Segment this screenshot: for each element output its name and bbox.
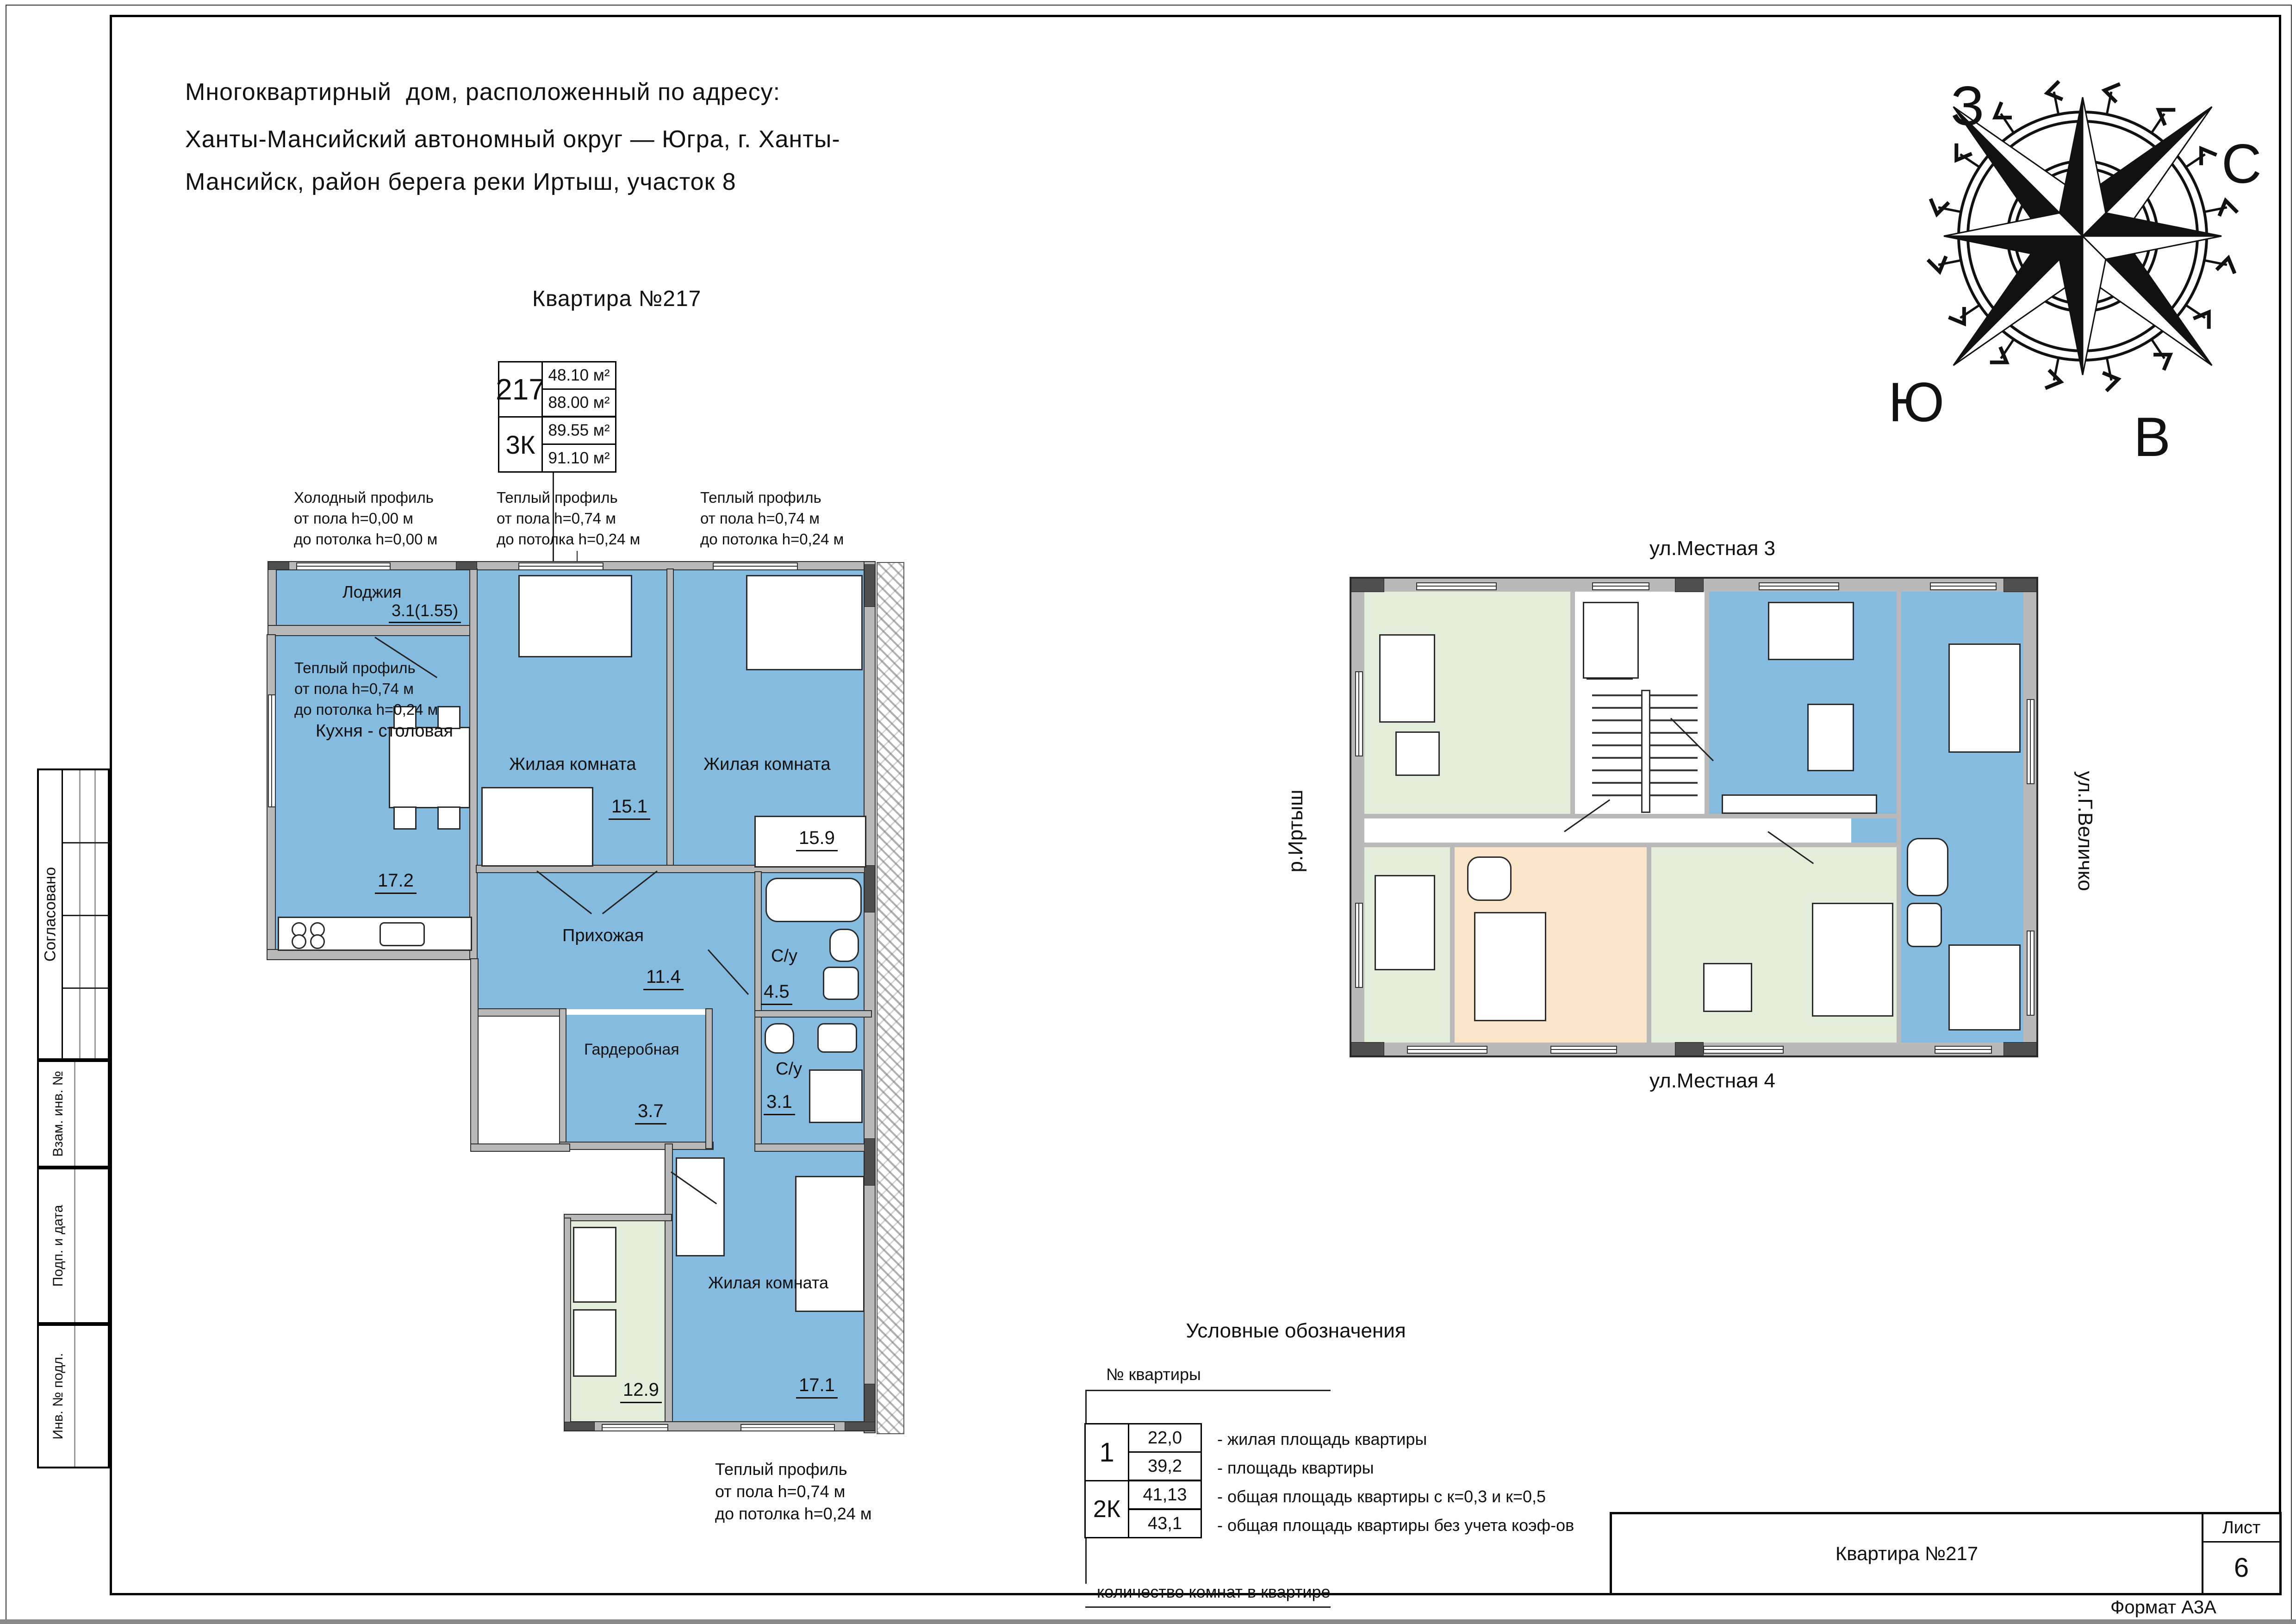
- title-block-sheet-cell: Лист 6: [2203, 1514, 2279, 1593]
- room-area-wardrobe: 3.7: [635, 1101, 666, 1124]
- shower: [809, 1069, 863, 1123]
- window: [1759, 582, 1839, 590]
- stove-burner: [292, 934, 306, 949]
- legend-cell-v1: 39,2: [1128, 1451, 1202, 1481]
- stamp-inv-box: Инв. № подл.: [37, 1324, 110, 1468]
- note-line: от пола h=0,00 м: [294, 508, 437, 529]
- window: [1930, 582, 1997, 590]
- wall-pier: [865, 565, 875, 606]
- toilet: [817, 1023, 857, 1053]
- card-area-flat: 88.00 м²: [548, 394, 610, 412]
- room-label-kitchen: Кухня - столовая: [316, 721, 453, 741]
- wall: [471, 959, 478, 1150]
- stamp-vzam-box: Взам. инв. №: [37, 1060, 110, 1168]
- elevator: [1583, 602, 1639, 679]
- room-corridor: [712, 1009, 755, 1144]
- sheet-bottom-shadow: [0, 1619, 2296, 1624]
- room-label-wardrobe: Гардеробная: [584, 1041, 679, 1059]
- note-line: от пола h=0,74 м: [294, 678, 438, 699]
- stamp-agreed-label: Согласовано: [41, 867, 59, 962]
- stove-burner: [310, 934, 325, 949]
- room-label-living3: Жилая комната: [708, 1273, 828, 1293]
- room-label-loggia: Лоджия: [342, 582, 402, 602]
- room-label-living2: Жилая комната: [703, 755, 830, 775]
- window: [1592, 582, 1649, 590]
- bathtub: [1467, 856, 1512, 901]
- window: [740, 1424, 835, 1431]
- title-block: Квартира №217 Лист 6: [1610, 1512, 2282, 1595]
- note-cold-profile: Холодный профиль от пола h=0,00 м до пот…: [294, 487, 437, 550]
- legend-cell-v3: 43,1: [1128, 1509, 1202, 1538]
- legend-sample-number: 1: [1099, 1437, 1114, 1468]
- wall: [755, 1011, 871, 1017]
- wall: [666, 1144, 672, 1429]
- wall: [477, 1009, 566, 1016]
- room-label-bath1: С/у: [771, 946, 797, 966]
- window: [2027, 931, 2035, 1016]
- card-cell-area-total: 91.10 м²: [541, 443, 616, 473]
- note-warm-profile-1: Теплый профиль от пола h=0,74 м до потол…: [497, 487, 640, 550]
- building-corridor: [1364, 818, 1897, 843]
- stamp-grid-vline2: [94, 770, 96, 1058]
- room-area-neighbor: 12.9: [620, 1380, 662, 1403]
- note-line: Теплый профиль: [715, 1458, 872, 1480]
- room-area-living3: 17.1: [796, 1375, 838, 1399]
- table: [1395, 731, 1440, 776]
- legend-cell-type: 2К: [1084, 1480, 1129, 1538]
- stamp-podp-box: Подп. и дата: [37, 1168, 110, 1324]
- window: [1355, 671, 1363, 756]
- title-block-name-cell: Квартира №217: [1612, 1514, 2203, 1593]
- chair: [393, 806, 417, 830]
- compass-rose: З С Ю В: [1870, 14, 2286, 458]
- legend-value: 41,13: [1143, 1485, 1187, 1505]
- note-line: от пола h=0,74 м: [497, 508, 640, 529]
- compass-east-label: В: [2134, 406, 2171, 458]
- wall-pier: [565, 1422, 594, 1430]
- street-label-bottom: ул.Местная 4: [1527, 1069, 1898, 1093]
- note-line: Холодный профиль: [294, 487, 437, 508]
- sheet-label: Лист: [2222, 1518, 2261, 1538]
- floor-plan-apartment: Лоджия 3.1(1.55) Теплый профиль от пола …: [241, 546, 916, 1454]
- bed: [518, 575, 632, 657]
- toilet: [1907, 903, 1942, 947]
- bed: [1375, 875, 1435, 970]
- note-line: Теплый профиль: [497, 487, 640, 508]
- address-line-2: Ханты-Мансийский автономный округ — Югра…: [185, 117, 840, 162]
- address-line-1: Многоквартирный дом, расположенный по ад…: [185, 69, 780, 115]
- chair: [437, 806, 460, 830]
- card-cell-number: 217: [498, 361, 543, 418]
- legend-leader-underline: [1085, 1606, 1331, 1608]
- bed: [1812, 903, 1893, 1017]
- note-line: от пола h=0,74 м: [700, 508, 844, 529]
- format-note: Формат А3А: [2110, 1597, 2216, 1618]
- wall: [706, 1009, 712, 1148]
- legend-leader-v2: [1085, 1538, 1087, 1584]
- wall: [865, 562, 875, 1432]
- kitchen-counter: [278, 917, 472, 951]
- note-line: до потолка h=0,24 м: [715, 1503, 872, 1525]
- note-warm-profile-2: Теплый профиль от пола h=0,74 м до потол…: [700, 487, 844, 550]
- card-cell-area-flat: 88.00 м²: [541, 388, 616, 417]
- wall-pier: [1675, 579, 1703, 592]
- legend-desc-1: - площадь квартиры: [1217, 1458, 1374, 1478]
- bed: [1948, 643, 2021, 753]
- window: [1416, 582, 1497, 590]
- kitchen-sink: [380, 922, 425, 946]
- compass-west-label: З: [1951, 75, 1984, 137]
- window: [713, 562, 798, 570]
- stamp-inv-divider: [74, 1326, 75, 1467]
- wall: [471, 1144, 569, 1151]
- window: [1935, 1046, 1992, 1054]
- wall-pier: [1351, 579, 1384, 592]
- toilet: [823, 967, 859, 1000]
- stamp-podp-divider: [74, 1169, 75, 1322]
- card-cell-area-living: 48.10 м²: [541, 361, 616, 390]
- wardrobe-cabinet: [481, 787, 593, 867]
- card-area-living: 48.10 м²: [548, 366, 610, 385]
- room-area-living1: 15.1: [609, 796, 650, 820]
- bed: [746, 575, 863, 670]
- wall: [565, 1218, 570, 1427]
- sheet-number-cell: 6: [2203, 1543, 2279, 1593]
- desk: [676, 1157, 725, 1256]
- note-warm-profile-kitchen: Теплый профиль от пола h=0,74 м до потол…: [294, 657, 438, 720]
- card-number: 217: [496, 372, 545, 406]
- room-label-living1: Жилая комната: [509, 755, 636, 775]
- window: [296, 562, 391, 570]
- floor-plan-building: [1351, 579, 2036, 1056]
- stamp-agreed-box: Согласовано: [37, 768, 110, 1060]
- legend-title: Условные обозначения: [1134, 1319, 1458, 1343]
- window: [268, 694, 276, 807]
- bed: [1948, 944, 2021, 1031]
- wall: [268, 562, 276, 635]
- sink: [765, 1023, 794, 1054]
- bathtub: [765, 878, 862, 922]
- bed: [1379, 634, 1435, 723]
- wall-pier: [865, 1139, 875, 1185]
- note-line: от пола h=0,74 м: [715, 1480, 872, 1503]
- card-cell-area-coef: 89.55 м²: [541, 416, 616, 445]
- wall-pier: [2004, 1043, 2036, 1056]
- legend-cell-number: 1: [1084, 1423, 1129, 1481]
- wall: [268, 950, 477, 959]
- wall-pier: [456, 562, 477, 569]
- card-area-total: 91.10 м²: [548, 449, 610, 468]
- note-line: до потолка h=0,24 м: [294, 699, 438, 720]
- room-area-bath1: 4.5: [761, 981, 792, 1005]
- window: [1355, 903, 1363, 988]
- legend-leader-h: [1085, 1390, 1331, 1391]
- window: [1550, 1046, 1617, 1054]
- wall: [560, 1009, 566, 1148]
- address-line-3: Мансийск, район берега реки Иртыш, участ…: [185, 159, 736, 205]
- legend-rooms-count-label: количество комнат в квартире: [1097, 1582, 1331, 1602]
- compass-north-label: С: [2221, 133, 2262, 195]
- stamp-grid-hline3: [63, 987, 108, 989]
- drawing-sheet: { "document": { "address_lines": [ "Мног…: [0, 0, 2296, 1624]
- street-label-top: ул.Местная 3: [1527, 537, 1898, 560]
- legend-apt-number-label: № квартиры: [1106, 1365, 1201, 1384]
- stamp-grid-vline1: [79, 770, 81, 1058]
- bed: [1474, 912, 1546, 1021]
- kitchen-counter: [1722, 794, 1877, 814]
- note-warm-profile-bottom: Теплый профиль от пола h=0,74 м до потол…: [715, 1458, 872, 1525]
- legend-leader-v1: [1085, 1390, 1087, 1424]
- stamp-inv-label: Инв. № подл.: [50, 1353, 66, 1440]
- note-line: Теплый профиль: [700, 487, 844, 508]
- neighbor-cabinet: [573, 1309, 616, 1377]
- stamp-grid-hline2: [63, 915, 108, 916]
- river-label-left: р.Иртыш: [1284, 790, 1307, 873]
- wall: [755, 1144, 871, 1151]
- wall: [560, 1143, 713, 1149]
- legend-value: 43,1: [1148, 1514, 1182, 1534]
- card-cell-type: 3К: [498, 416, 543, 473]
- street-label-right: ул.Г.Величко: [2073, 771, 2097, 891]
- bed: [1768, 602, 1854, 660]
- legend-cell-v0: 22,0: [1128, 1423, 1202, 1453]
- elevator-door: [1587, 678, 1633, 680]
- stair-divider: [1641, 690, 1650, 813]
- window: [2027, 699, 2035, 784]
- window: [518, 562, 604, 570]
- wall: [268, 626, 477, 635]
- wall: [667, 569, 673, 871]
- neighbor-cabinet: [573, 1227, 616, 1303]
- room-area-hall: 11.4: [643, 967, 684, 990]
- legend-desc-0: - жилая площадь квартиры: [1217, 1430, 1427, 1449]
- table: [1807, 704, 1854, 771]
- compass-south-label: Ю: [1888, 371, 1944, 433]
- stamp-grid-hline1: [63, 842, 108, 843]
- unit-blue-hall-pocket: [1851, 818, 1897, 843]
- legend-sample-type: 2К: [1093, 1495, 1120, 1523]
- wall-pier: [1675, 1043, 1703, 1056]
- legend-value: 22,0: [1148, 1428, 1182, 1448]
- insulation-hatch: [877, 562, 904, 1434]
- room-label-hall: Прихожая: [562, 926, 644, 946]
- note-line: Теплый профиль: [294, 657, 438, 678]
- legend-value: 39,2: [1148, 1456, 1182, 1476]
- wall-pier: [865, 866, 875, 912]
- apartment-heading: Квартира №217: [532, 286, 701, 312]
- wall-pier: [865, 1384, 875, 1426]
- legend-desc-3: - общая площадь квартиры без учета коэф-…: [1217, 1516, 1574, 1535]
- window: [602, 1424, 668, 1431]
- sheet-label-cell: Лист: [2203, 1514, 2279, 1543]
- wall: [470, 569, 477, 959]
- wall: [565, 1215, 671, 1220]
- room-area-loggia: 3.1(1.55): [389, 601, 461, 623]
- legend-cell-v2: 41,13: [1128, 1480, 1202, 1510]
- room-area-bath2: 3.1: [764, 1092, 795, 1115]
- room-area-kitchen: 17.2: [375, 870, 417, 894]
- room-area-living2: 15.9: [796, 828, 838, 851]
- wall-pier: [268, 562, 289, 569]
- wall-pier: [845, 1422, 875, 1430]
- stamp-agreed-label-col: Согласовано: [39, 770, 63, 1058]
- wall-pier: [2004, 579, 2036, 592]
- sink: [829, 929, 859, 962]
- bathtub: [1907, 838, 1948, 896]
- card-type: 3К: [506, 430, 535, 460]
- card-area-coef: 89.55 м²: [548, 421, 610, 440]
- sheet-number: 6: [2234, 1552, 2249, 1583]
- table: [1703, 963, 1752, 1012]
- title-block-name: Квартира №217: [1836, 1543, 1978, 1565]
- window: [1407, 1046, 1487, 1054]
- stamp-vzam-label: Взам. инв. №: [50, 1071, 66, 1157]
- legend-desc-2: - общая площадь квартиры с к=0,3 и к=0,5: [1217, 1487, 1546, 1506]
- window: [1703, 1046, 1784, 1054]
- wall-pier: [1351, 1043, 1384, 1056]
- stamp-vzam-divider: [74, 1062, 75, 1166]
- stamp-podp-label: Подп. и дата: [50, 1205, 66, 1287]
- room-label-bath2: С/у: [776, 1059, 802, 1079]
